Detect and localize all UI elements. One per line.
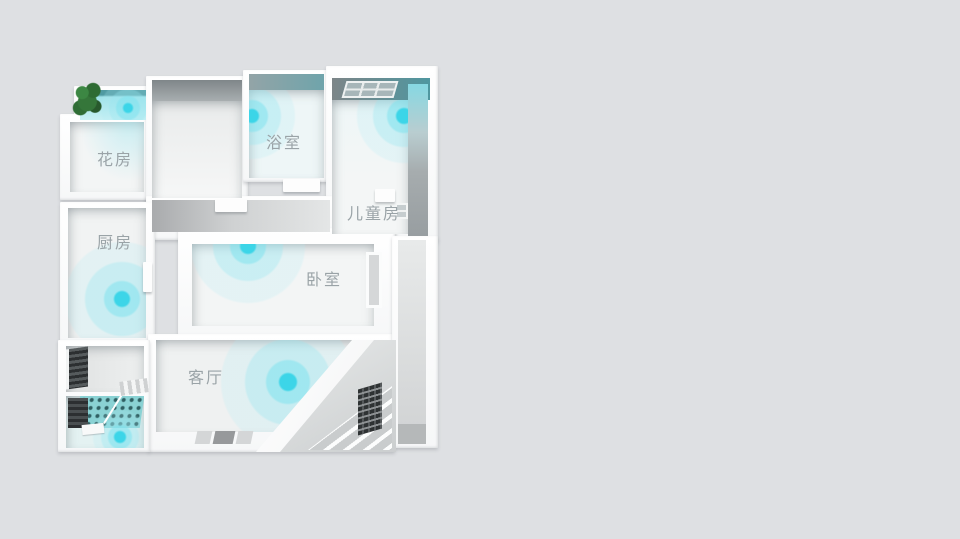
bathroom-ceiling-edge — [249, 74, 324, 90]
doormat-segment — [236, 431, 253, 444]
vent-window-icon — [66, 346, 88, 389]
entrance-doormat — [195, 431, 254, 444]
signal-glow-bedroom — [192, 244, 308, 306]
right-wing-inner — [398, 240, 426, 428]
small-bathroom-floor — [66, 396, 144, 448]
floorplan-scene: 花房 浴室 儿童房 厨房 卧室 客厅 — [0, 0, 960, 539]
kids-room-right-wall-face — [408, 84, 428, 236]
room-label-flower-room: 花房 — [97, 146, 133, 170]
signal-glow-balcony — [97, 90, 146, 120]
bath-mat — [82, 423, 105, 435]
right-wing-bottom-slab — [398, 424, 426, 444]
doormat-segment — [195, 431, 212, 444]
room-label-kitchen: 厨房 — [97, 229, 133, 253]
bedroom-window-niche — [366, 252, 382, 308]
bedroom-floor — [192, 244, 374, 326]
living-room-right-wall — [256, 340, 396, 452]
kitchen-door-frame — [143, 262, 152, 292]
room-label-bathroom: 浴室 — [266, 129, 302, 153]
room-label-bedroom: 卧室 — [306, 266, 342, 290]
signal-glow-kitchen — [68, 239, 146, 338]
skylight-window-icon — [342, 81, 399, 98]
room-label-kids-room: 儿童房 — [347, 200, 401, 224]
door-lintel-bathroom — [283, 179, 320, 192]
plant-icon — [72, 82, 104, 120]
mid-room-floor — [152, 101, 242, 198]
doormat-segment — [212, 431, 235, 444]
mid-room-ceiling-edge — [152, 80, 242, 101]
kitchen-floor — [68, 208, 146, 338]
room-label-living-room: 客厅 — [188, 364, 224, 388]
door-lintel-mid-room — [215, 199, 247, 212]
dark-window-grid-icon — [358, 383, 382, 436]
radiator-icon — [68, 398, 88, 428]
signal-glow-kids-room — [354, 100, 408, 166]
